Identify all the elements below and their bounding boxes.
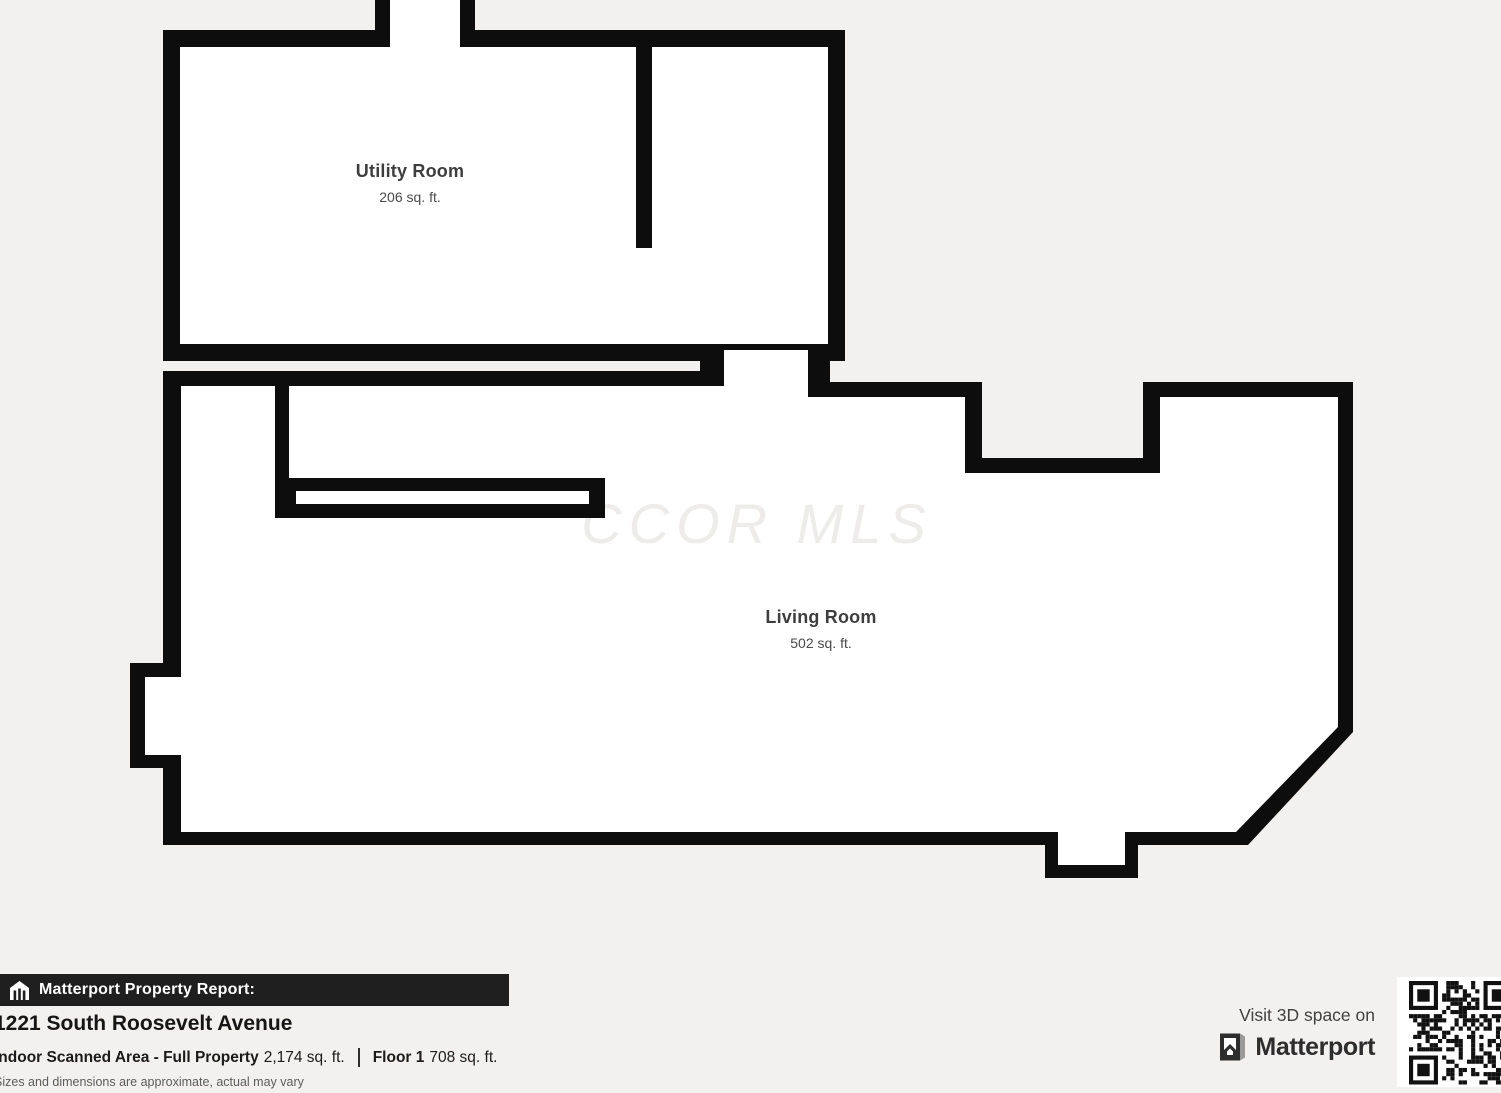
scanned-area-label: Indoor Scanned Area - Full Property bbox=[0, 1049, 259, 1067]
disclaimer-text: Sizes and dimensions are approximate, ac… bbox=[0, 1075, 304, 1089]
property-address: 1221 South Roosevelt Avenue bbox=[0, 1012, 292, 1036]
floor-plan: CCOR MLS bbox=[0, 0, 1501, 1093]
report-banner-title: Matterport Property Report: bbox=[39, 981, 255, 999]
matterport-logo: Matterport bbox=[1090, 1031, 1375, 1063]
scanned-area-line: Indoor Scanned Area - Full Property 2,17… bbox=[0, 1048, 497, 1067]
watermark: CCOR MLS bbox=[581, 492, 933, 555]
floor-label: Floor 1 bbox=[373, 1049, 425, 1067]
matterport-mark-icon bbox=[1217, 1031, 1247, 1063]
living-room-walls bbox=[130, 345, 1353, 878]
scanned-area-value: 2,174 sq. ft. bbox=[264, 1049, 345, 1067]
report-banner: Matterport Property Report: bbox=[0, 974, 509, 1006]
matterport-wordmark: Matterport bbox=[1255, 1033, 1375, 1062]
divider bbox=[358, 1048, 360, 1067]
visit-3d-text: Visit 3D space on bbox=[1090, 1005, 1375, 1026]
floor-area-value: 708 sq. ft. bbox=[429, 1049, 497, 1067]
qr-code bbox=[1397, 977, 1501, 1087]
matterport-floor-plan-report: { "floor_plan": { "watermark": "CCOR MLS… bbox=[0, 0, 1501, 1093]
utility-room-walls bbox=[163, 0, 845, 361]
matterport-promo: Visit 3D space on Matterport bbox=[1090, 1005, 1375, 1063]
house-icon bbox=[9, 980, 30, 1001]
